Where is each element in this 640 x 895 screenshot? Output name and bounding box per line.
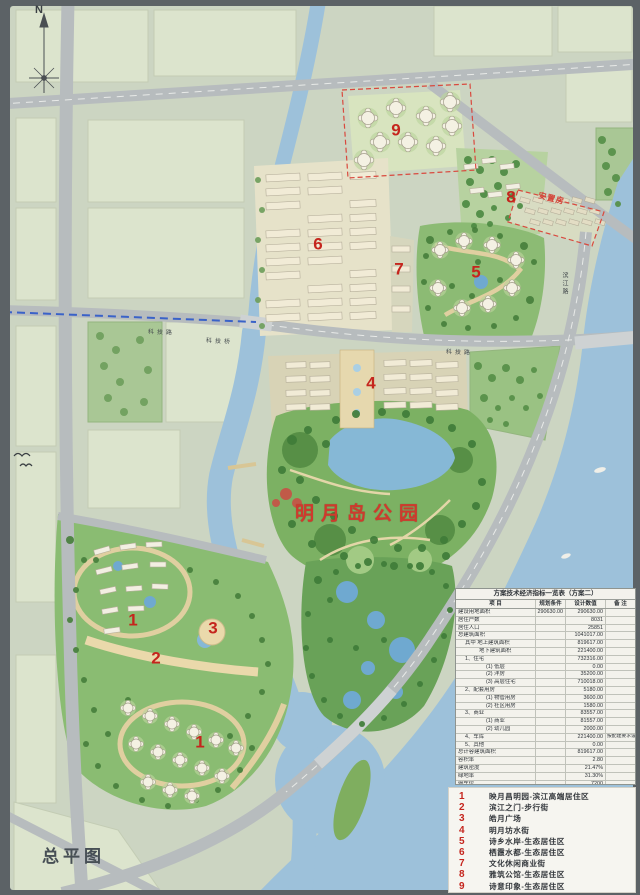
road-label-binjiang: 滨江路 [560, 272, 569, 296]
table-row: (3) 高层住宅 710018.00 [456, 679, 635, 687]
legend-item-label: 映月昌明园-滨江高端居住区 [489, 791, 635, 802]
legend-item: 4 明月坊水街 [459, 825, 635, 836]
legend-item-number: 2 [459, 802, 489, 813]
zone-marker-5: 5 [471, 264, 480, 281]
legend-item: 3 皓月广场 [459, 813, 635, 824]
table-row: 停车位 7200 [456, 781, 635, 785]
legend-item: 8 雅筑公馆-生态居住区 [459, 869, 635, 880]
table-row: 4、车库 221400.00 按配建要求设置 [456, 734, 635, 742]
table-row: (2) 幼儿园 2000.00 [456, 726, 635, 734]
table-row: 其中 地上建筑面积 819617.00 [456, 640, 635, 648]
legend-item: 2 滨江之门-步行街 [459, 802, 635, 813]
table-row: 绿地率 31.30% [456, 773, 635, 781]
zone-marker-6: 6 [313, 236, 322, 253]
table-row: 居住人口 25851 [456, 625, 635, 633]
table-title: 方案技术经济指标一览表（方案二） [456, 589, 635, 600]
table-row: (1) 商业 81557.00 [456, 718, 635, 726]
plan-title: 总平图 [42, 842, 105, 867]
legend-item-number: 7 [459, 858, 489, 869]
legend-item-number: 1 [459, 791, 489, 802]
legend-item-number: 5 [459, 836, 489, 847]
table-header-item: 项 目 [456, 600, 536, 608]
legend-item-label: 皓月广场 [489, 813, 635, 824]
road-label-keji-right: 科技路 [446, 347, 473, 357]
indicator-table: 方案技术经济指标一览表（方案二） 项 目 规划条件 设计数值 备 注 建设用地面… [455, 588, 636, 785]
zone-marker-2: 2 [151, 650, 160, 667]
zone-marker-8: 8 [506, 189, 515, 206]
table-row: (2) 洋房 35200.00 [456, 671, 635, 679]
legend-item: 5 诗乡水岸-生态居住区 [459, 836, 635, 847]
legend-item-label: 诗乡水岸-生态居住区 [489, 836, 635, 847]
legend-item-label: 栖霞水都-生态居住区 [489, 847, 635, 858]
river-bridge [575, 337, 640, 343]
legend-item: 9 诗意印象-生态居住区 [459, 881, 635, 892]
table-row: (2) 社区用房 1580.00 [456, 703, 635, 711]
legend-item: 6 栖霞水都-生态居住区 [459, 847, 635, 858]
zone-marker-7: 7 [394, 261, 403, 278]
legend-item-number: 8 [459, 869, 489, 880]
table-header-note: 备 注 [606, 600, 635, 608]
legend-item-label: 明月坊水街 [489, 825, 635, 836]
table-row: 居住户数 8031 [456, 617, 635, 625]
legend-item-number: 3 [459, 813, 489, 824]
table-body: 建设用地面积 290630.00 290630.00 居住户数 8031 居住人… [456, 609, 635, 785]
legend-list: 1 映月昌明园-滨江高端居住区 2 滨江之门-步行街 3 皓月广场 4 明月坊水… [459, 791, 635, 892]
road-label-keji-bridge: 科技桥 [206, 335, 233, 345]
table-row: 5、其他 0.00 [456, 742, 635, 750]
table-row: 2、配套用房 5180.00 [456, 687, 635, 695]
park-label: 明月岛公园 [295, 499, 425, 526]
zone-marker-1a: 1 [128, 612, 137, 629]
table-row: 建设用地面积 290630.00 290630.00 [456, 609, 635, 617]
table-row: 总计容建筑面积 819617.00 [456, 749, 635, 757]
masterplan-photo: N 科技路 科技桥 科技路 滨江路 明月岛公园 安置房 总平图 9 8 6 7 … [0, 0, 640, 895]
legend-item-number: 4 [459, 825, 489, 836]
table-header-value: 设计数值 [566, 600, 606, 608]
map-legend: 1 映月昌明园-滨江高端居住区 2 滨江之门-步行街 3 皓月广场 4 明月坊水… [448, 787, 636, 893]
zone-marker-1b: 1 [195, 734, 204, 751]
table-row: (1) 物管用房 3600.00 [456, 695, 635, 703]
table-row: 容积率 2.80 [456, 757, 635, 765]
legend-item-number: 9 [459, 881, 489, 892]
zone-marker-4: 4 [366, 375, 375, 392]
table-row: 总建筑面积 1041017.00 [456, 632, 635, 640]
compass-north-label: N [35, 4, 43, 16]
legend-item-label: 滨江之门-步行街 [489, 802, 635, 813]
legend-item-label: 雅筑公馆-生态居住区 [489, 869, 635, 880]
table-row: 建筑密度 21.47% [456, 765, 635, 773]
legend-item-label: 文化休闲商业街 [489, 858, 635, 869]
zone-marker-3: 3 [208, 620, 217, 637]
table-row: 1、住宅 732316.00 [456, 656, 635, 664]
table-header-row: 项 目 规划条件 设计数值 备 注 [456, 600, 635, 609]
table-row: (1) 低层 0.00 [456, 664, 635, 672]
table-header-cond: 规划条件 [536, 600, 566, 608]
zone-marker-9: 9 [391, 122, 400, 139]
table-row: 3、商业 83557.00 [456, 710, 635, 718]
legend-item-number: 6 [459, 847, 489, 858]
road-label-keji-left: 科技路 [148, 327, 175, 337]
legend-item: 1 映月昌明园-滨江高端居住区 [459, 791, 635, 802]
legend-item-label: 诗意印象-生态居住区 [489, 881, 635, 892]
legend-item: 7 文化休闲商业街 [459, 858, 635, 869]
table-row: 地下建筑面积 221400.00 [456, 648, 635, 656]
